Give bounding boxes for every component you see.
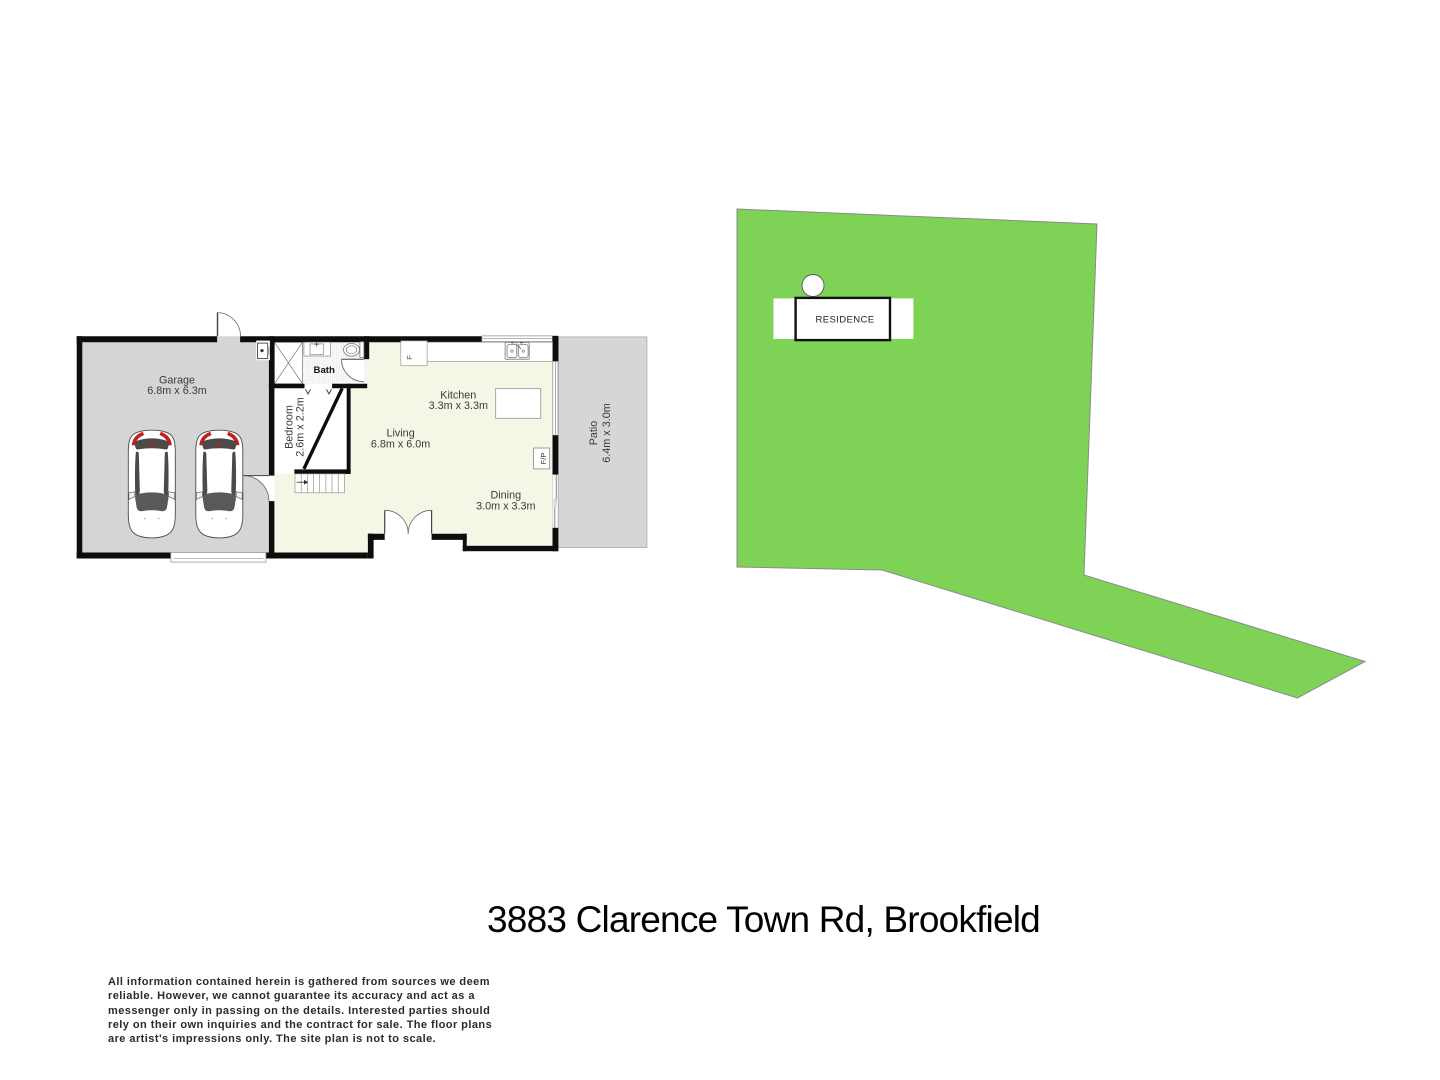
svg-text:6.8m x 6.3m: 6.8m x 6.3m: [147, 385, 206, 397]
svg-text:F: F: [405, 355, 414, 360]
svg-text:2.6m x 2.2m: 2.6m x 2.2m: [294, 397, 306, 456]
svg-text:3.0m x 3.3m: 3.0m x 3.3m: [476, 500, 535, 512]
svg-text:Patio: Patio: [588, 421, 600, 446]
svg-text:6.4m x 3.0m: 6.4m x 3.0m: [601, 403, 613, 462]
svg-text:3.3m x 3.3m: 3.3m x 3.3m: [429, 400, 488, 412]
svg-text:F/P: F/P: [539, 453, 548, 465]
svg-text:6.8m x 6.0m: 6.8m x 6.0m: [371, 438, 430, 450]
svg-text:RESIDENCE: RESIDENCE: [815, 314, 874, 325]
svg-text:Bath: Bath: [314, 365, 335, 376]
